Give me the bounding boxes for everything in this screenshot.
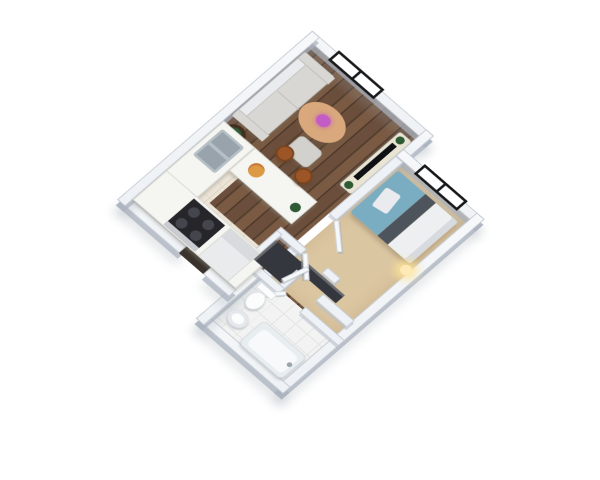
stove-burner xyxy=(185,205,202,220)
stove-burner xyxy=(200,218,217,233)
apartment-floorplan xyxy=(88,31,508,394)
sofa-cushion-seam xyxy=(277,91,299,110)
floorplan-stage xyxy=(0,0,600,480)
